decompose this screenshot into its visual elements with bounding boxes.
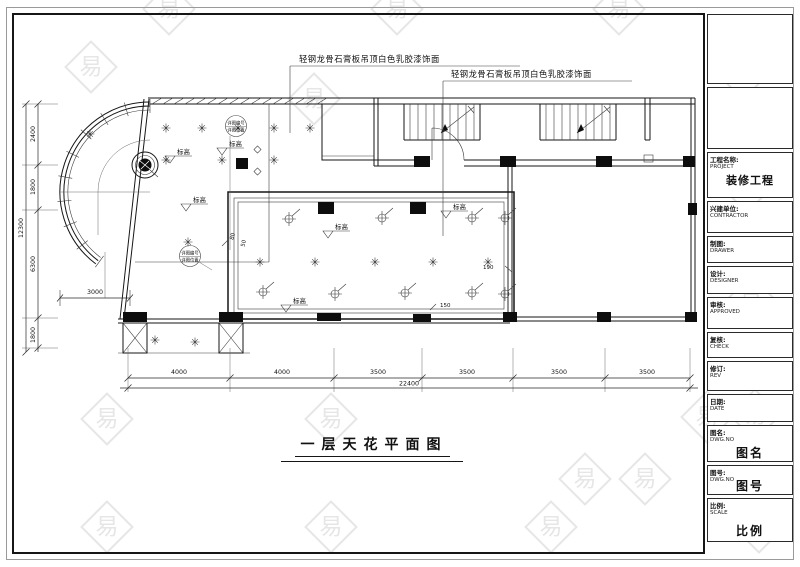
ceiling-light-icon (371, 258, 380, 267)
downlight-icon (465, 283, 483, 300)
svg-text:3000: 3000 (87, 289, 103, 296)
downlight-icon (375, 208, 393, 225)
svg-text:详图编号: 详图编号 (181, 250, 198, 257)
svg-text:标高: 标高 (193, 195, 207, 204)
svg-text:1800: 1800 (30, 327, 37, 343)
svg-text:标高: 标高 (177, 147, 191, 156)
drawing-title: 一层天花平面图 (281, 434, 463, 462)
ceiling-light-icon (198, 124, 207, 133)
svg-text:轻钢龙骨石膏板吊顶白色乳胶漆饰面: 轻钢龙骨石膏板吊顶白色乳胶漆饰面 (451, 69, 592, 79)
title-block-seal-box (707, 87, 793, 149)
svg-text:4000: 4000 (274, 369, 290, 376)
svg-text:4000: 4000 (171, 369, 187, 376)
ceiling-light-icon (306, 124, 315, 133)
round-column (132, 152, 158, 178)
svg-text:6300: 6300 (30, 256, 37, 272)
elevation-mark: 标高 (441, 202, 468, 218)
elevation-mark: 标高 (165, 147, 192, 163)
svg-text:3500: 3500 (459, 369, 475, 376)
svg-text:50: 50 (240, 239, 248, 248)
svg-text:标高: 标高 (229, 139, 243, 148)
columns (123, 146, 697, 353)
dimension-bottom: 4000 4000 3500 3500 3500 3500 22400 (120, 348, 698, 392)
elevation-mark: 标高 (181, 195, 208, 211)
wall-hatch (152, 99, 326, 105)
svg-text:3500: 3500 (370, 369, 386, 376)
svg-text:标高: 标高 (293, 296, 307, 305)
ceiling-light-icon (191, 338, 200, 347)
cad-sheet: 易易易易易易易易易易易易易易易易易易 (0, 0, 800, 567)
svg-text:1800: 1800 (30, 179, 37, 195)
downlight-icon (398, 283, 416, 300)
ceiling-note-1: 轻钢龙骨石膏板吊顶白色乳胶漆饰面 (290, 54, 520, 133)
svg-text:150: 150 (440, 303, 451, 309)
ceiling-light-icon (162, 156, 171, 165)
svg-text:2400: 2400 (30, 126, 37, 142)
svg-text:22400: 22400 (399, 381, 419, 388)
stairs-left (404, 104, 480, 160)
title-block-row-rev: 修订: REV (707, 361, 793, 391)
ceiling-light-icon (184, 238, 193, 247)
floor-plan-drawing: 标高标高标高标高标高标高 详图编号 详图位置 详图编号 详图位置 轻钢龙骨石膏板… (0, 0, 800, 567)
svg-text:标高: 标高 (453, 202, 467, 211)
svg-text:80: 80 (229, 232, 237, 241)
title-block-row-dwg-no: 图号: DWG.NO 图号 (707, 465, 793, 495)
ceiling-light-icon (270, 156, 279, 165)
ceiling-light-icon (162, 124, 171, 133)
svg-text:轻钢龙骨石膏板吊顶白色乳胶漆饰面: 轻钢龙骨石膏板吊顶白色乳胶漆饰面 (299, 54, 440, 64)
curved-glass-wall (58, 99, 150, 298)
svg-text:标高: 标高 (335, 222, 349, 231)
svg-text:详图编号: 详图编号 (227, 120, 244, 127)
title-block: 工程名称: PROJECT 装修工程 兴建单位: CONTRACTOR 制图: … (707, 14, 793, 542)
ceiling-light-icon (429, 258, 438, 267)
title-block-row-check: 复核: CHECK (707, 332, 793, 358)
svg-text:详图位置: 详图位置 (181, 257, 199, 264)
svg-text:3500: 3500 (639, 369, 655, 376)
ceiling-recess (228, 192, 514, 319)
downlight-icon (282, 209, 300, 226)
title-block-logo-box (707, 14, 793, 84)
svg-text:3500: 3500 (551, 369, 567, 376)
title-block-row-dwg-name: 图名: DWG.NO 图名 (707, 425, 793, 462)
stairs-right (540, 104, 616, 140)
title-block-row-drawer: 制图: DRAWER (707, 236, 793, 263)
detail-dimensions: 80 50 190 150 (222, 232, 512, 310)
elevation-mark: 标高 (323, 222, 350, 238)
title-block-row-designer: 设计: DESIGNER (707, 266, 793, 294)
downlight-icon (465, 208, 483, 225)
ceiling-light-icon (270, 124, 279, 133)
dimension-left: 2400 1800 6300 1800 12300 (18, 101, 58, 356)
title-block-row-contractor: 兴建单位: CONTRACTOR (707, 201, 793, 233)
title-block-row-approved: 审核: APPROVED (707, 297, 793, 329)
drawing-title-text: 一层天花平面图 (295, 434, 450, 457)
title-block-row-project: 工程名称: PROJECT 装修工程 (707, 152, 793, 198)
svg-text:详图位置: 详图位置 (227, 127, 245, 134)
downlight-icon (256, 282, 274, 299)
ceiling-light-icon (218, 156, 227, 165)
title-block-row-date: 日期: DATE (707, 394, 793, 422)
ceiling-light-icon (86, 130, 95, 139)
title-block-row-scale: 比例: SCALE 比例 (707, 498, 793, 542)
detail-tag: 详图编号 详图位置 (180, 246, 213, 271)
svg-text:190: 190 (483, 265, 494, 271)
ceiling-note-2: 轻钢龙骨石膏板吊顶白色乳胶漆饰面 (443, 69, 632, 236)
svg-text:12300: 12300 (18, 218, 25, 238)
elevation-mark: 标高 (217, 139, 244, 155)
ceiling-light-icon (256, 258, 265, 267)
ceiling-light-icon (151, 336, 160, 345)
downlight-icon (328, 284, 346, 301)
ceiling-light-icon (311, 258, 320, 267)
elevation-mark: 标高 (281, 296, 308, 312)
